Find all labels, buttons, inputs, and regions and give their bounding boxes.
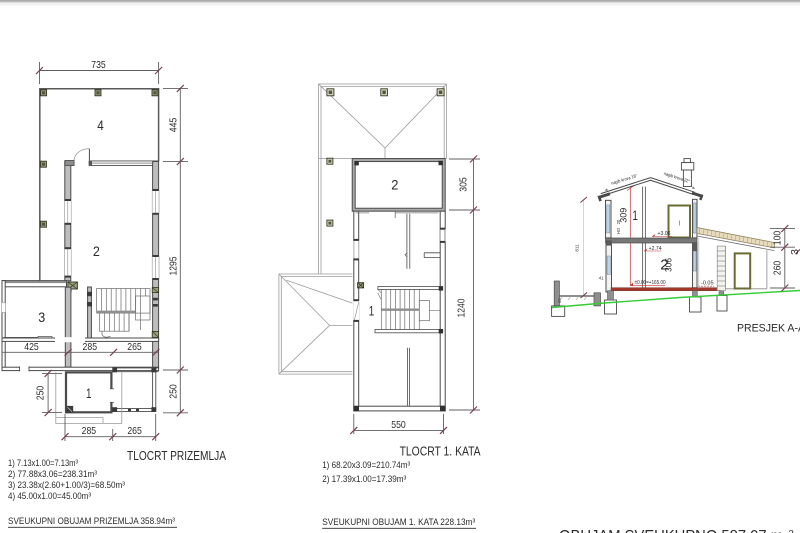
svg-text:250: 250 xyxy=(168,384,180,399)
svg-text:-0.05: -0.05 xyxy=(701,281,714,287)
svg-text:1295: 1295 xyxy=(168,256,180,275)
svg-text:306: 306 xyxy=(664,258,674,272)
svg-text:285: 285 xyxy=(82,425,97,437)
svg-text:735: 735 xyxy=(91,59,106,71)
svg-text:1: 1 xyxy=(86,385,92,401)
svg-text:265: 265 xyxy=(127,341,142,353)
svg-text:2: 2 xyxy=(391,177,398,193)
svg-text:1240: 1240 xyxy=(456,298,468,317)
svg-text:811: 811 xyxy=(575,244,580,252)
svg-text:3) 23.38x(2.60+1.00/3)=68.50m³: 3) 23.38x(2.60+1.00/3)=68.50m³ xyxy=(8,479,125,490)
svg-text:SVEUKUPNI OBUJAM 1. KATA 228.1: SVEUKUPNI OBUJAM 1. KATA 228.13m³ xyxy=(322,517,475,528)
svg-text:4) 45.00x1.00=45.00m³: 4) 45.00x1.00=45.00m³ xyxy=(8,490,91,501)
svg-text:285: 285 xyxy=(83,341,98,353)
svg-text:425: 425 xyxy=(24,341,39,353)
svg-text:3: 3 xyxy=(789,529,794,533)
svg-text:1: 1 xyxy=(632,207,638,223)
svg-text:TLOCRT 1. KATA: TLOCRT 1. KATA xyxy=(400,445,482,459)
svg-text:HO: HO xyxy=(616,227,621,234)
svg-text:20: 20 xyxy=(616,219,621,224)
svg-text:SVEUKUPNI OBUJAM PRIZEMLJA 358: SVEUKUPNI OBUJAM PRIZEMLJA 358.94m³ xyxy=(8,516,175,527)
svg-text:250: 250 xyxy=(35,386,47,401)
svg-text:TLOCRT PRIZEMLJA: TLOCRT PRIZEMLJA xyxy=(127,449,227,463)
svg-text:3: 3 xyxy=(789,249,800,255)
svg-text:100: 100 xyxy=(772,231,784,246)
svg-text:2: 2 xyxy=(93,243,100,259)
svg-text:41: 41 xyxy=(599,276,604,281)
svg-text:2) 17.39x1.00=17.39m³: 2) 17.39x1.00=17.39m³ xyxy=(322,473,406,484)
svg-text:265: 265 xyxy=(127,425,142,437)
svg-text:4: 4 xyxy=(97,117,104,133)
svg-text:2) 77.88x3.06=238.31m³: 2) 77.88x3.06=238.31m³ xyxy=(8,468,97,479)
svg-text:1: 1 xyxy=(369,303,375,319)
svg-text:550: 550 xyxy=(391,419,406,431)
svg-text:445: 445 xyxy=(168,118,180,133)
svg-text:3: 3 xyxy=(38,309,45,325)
svg-text:OBUJAM SVEUKUPNO 587.07 m: OBUJAM SVEUKUPNO 587.07 m xyxy=(559,528,783,533)
svg-text:260: 260 xyxy=(772,261,784,276)
svg-text:1) 68.20x3.09=210.74m³: 1) 68.20x3.09=210.74m³ xyxy=(322,459,410,470)
svg-text:PRESJEK A-A: PRESJEK A-A xyxy=(737,323,800,335)
svg-text:1) 7.13x1.00=7.13m³: 1) 7.13x1.00=7.13m³ xyxy=(8,457,78,468)
svg-text:305: 305 xyxy=(458,177,470,192)
